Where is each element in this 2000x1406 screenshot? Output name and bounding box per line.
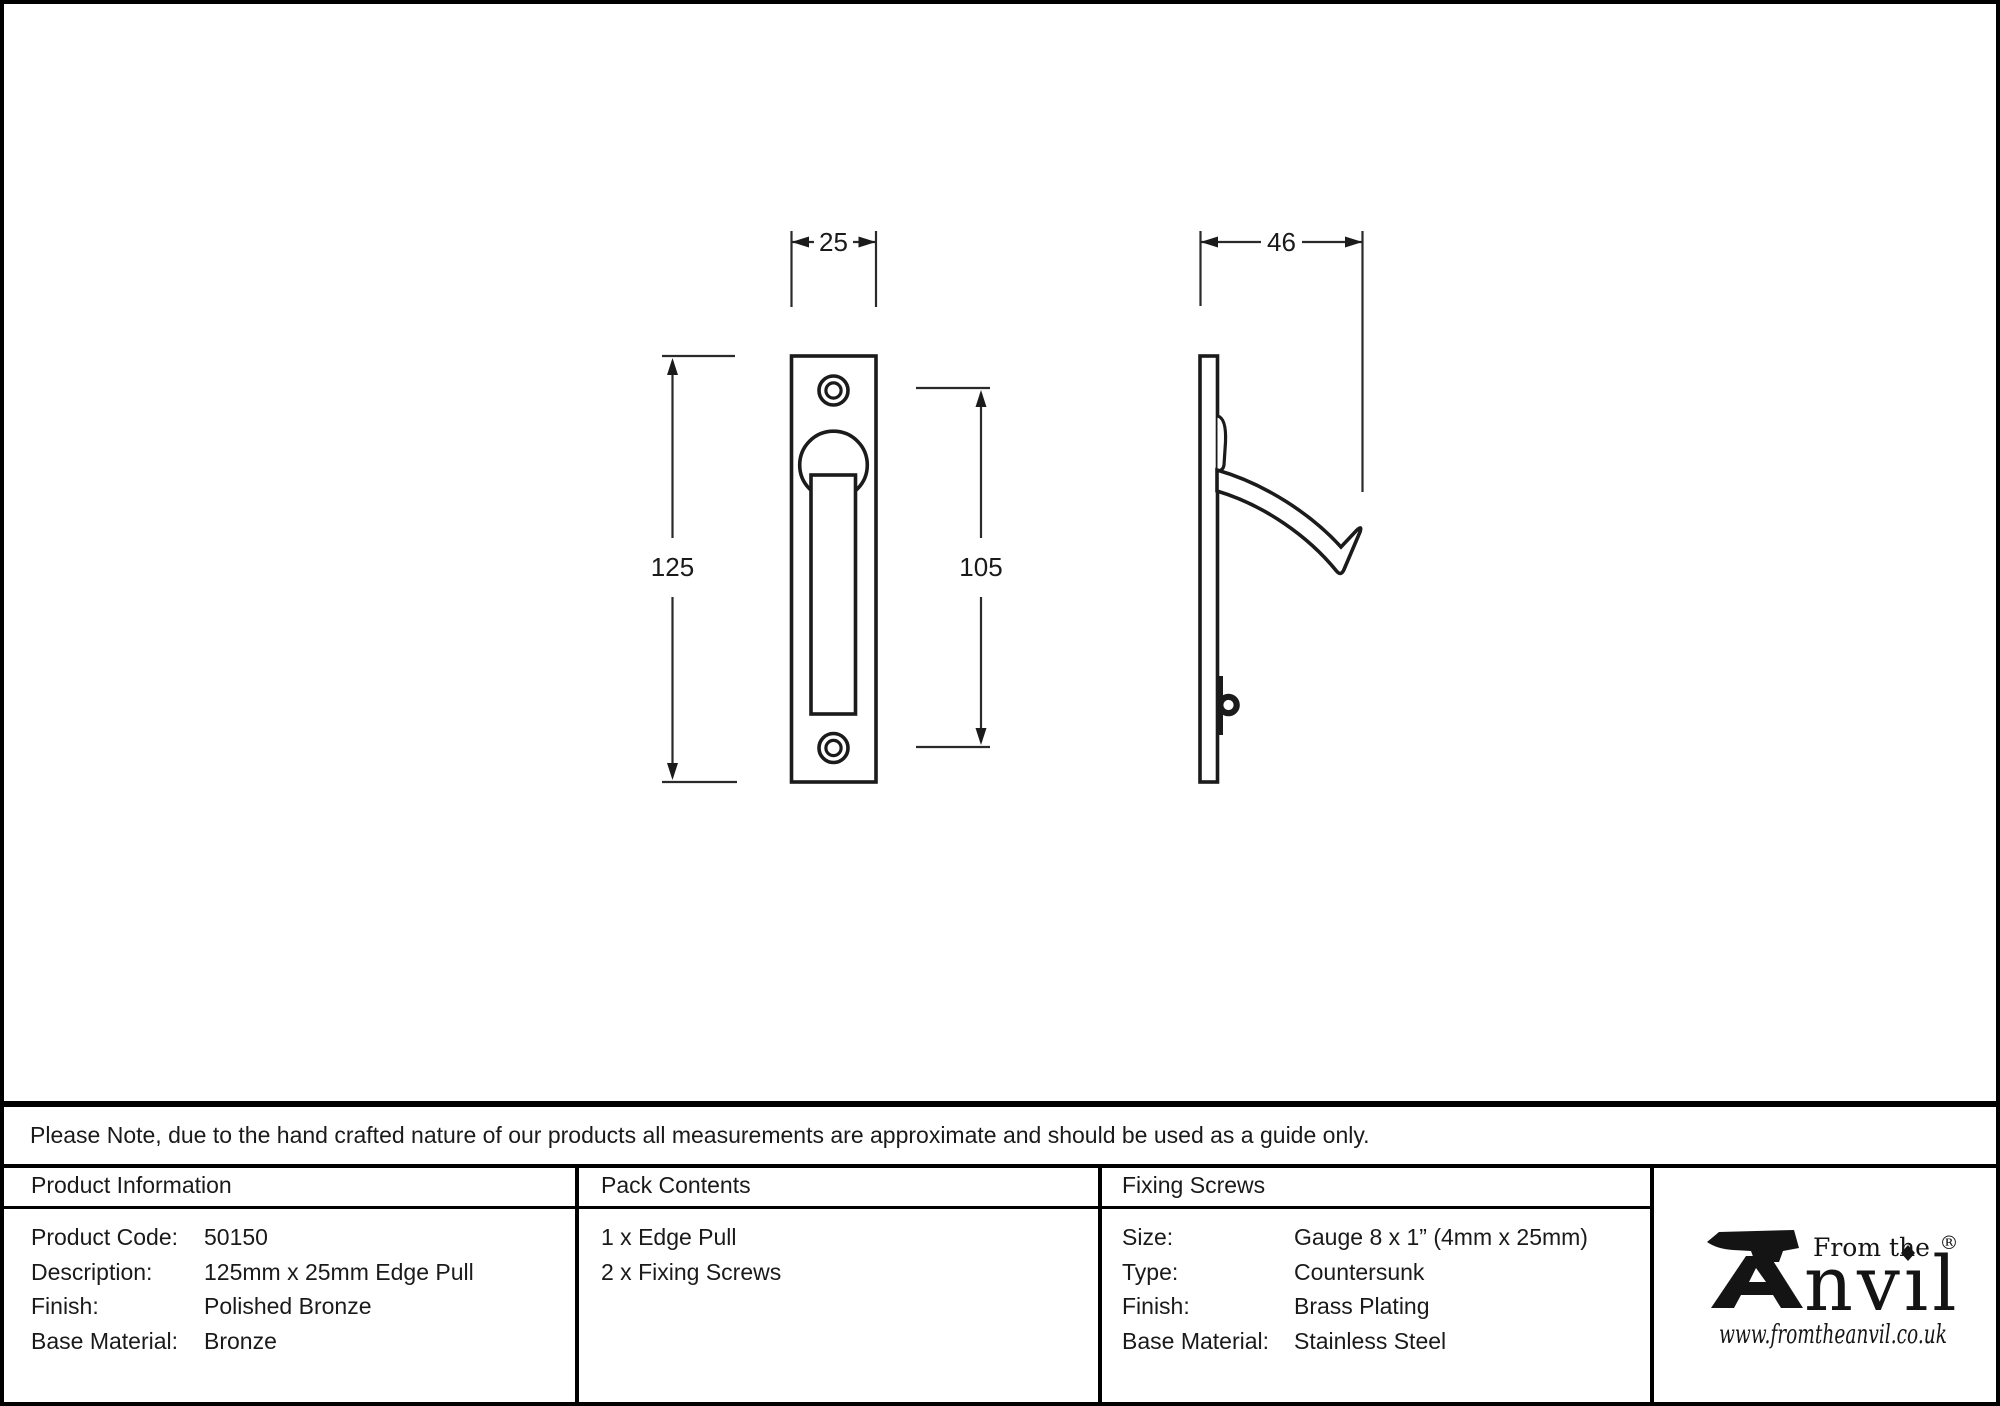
spec-value: 125mm x 25mm Edge Pull	[204, 1255, 474, 1290]
spec-row: Finish: Polished Bronze	[31, 1289, 571, 1324]
anvil-a-glyph	[1711, 1256, 1803, 1308]
website-url: www.fromtheanvil.co.uk	[1719, 1320, 1947, 1350]
note-text: Please Note, due to the hand crafted nat…	[30, 1106, 1370, 1164]
technical-drawing: 25 125 105	[4, 4, 2000, 1104]
spec-value: Countersunk	[1294, 1255, 1424, 1290]
product-information-header: Product Information	[31, 1164, 232, 1206]
brand-logo: From the nvıl ® www.fromtheanvil.co.uk	[1697, 1226, 1967, 1356]
side-pivot-knob	[1220, 697, 1236, 713]
side-ring-tab	[1218, 416, 1226, 471]
front-view	[792, 356, 877, 782]
spec-value: 50150	[204, 1220, 268, 1255]
spec-label: Product Code:	[31, 1220, 204, 1255]
pack-contents-header: Pack Contents	[601, 1164, 751, 1206]
arrow-down-icon	[667, 763, 678, 780]
arrow-right-icon	[859, 237, 877, 248]
side-plate-outline	[1200, 356, 1218, 782]
spec-label: Description:	[31, 1255, 204, 1290]
arrow-down-icon	[976, 728, 987, 745]
dimension-label-depth: 46	[1267, 227, 1296, 257]
spec-row: Type: Countersunk	[1122, 1255, 1642, 1290]
spec-sheet-page: 25 125 105	[0, 0, 2000, 1406]
table-top-border	[4, 1164, 2000, 1168]
arrow-up-icon	[976, 390, 987, 407]
table-divider	[575, 1164, 579, 1406]
spec-row: Base Material: Bronze	[31, 1324, 571, 1359]
spec-value: Stainless Steel	[1294, 1324, 1446, 1359]
arrow-left-icon	[1201, 237, 1219, 248]
dimension-label-height: 125	[651, 552, 694, 582]
spec-row: Description: 125mm x 25mm Edge Pull	[31, 1255, 571, 1290]
list-item: 2 x Fixing Screws	[601, 1255, 1081, 1290]
list-item: 1 x Edge Pull	[601, 1220, 1081, 1255]
spec-value: Polished Bronze	[204, 1289, 372, 1324]
spec-label: Finish:	[31, 1289, 204, 1324]
arrow-left-icon	[792, 237, 810, 248]
product-information-rows: Product Code: 50150 Description: 125mm x…	[31, 1220, 571, 1358]
spec-row: Product Code: 50150	[31, 1220, 571, 1255]
fixing-screws-header: Fixing Screws	[1122, 1164, 1265, 1206]
arrow-up-icon	[667, 358, 678, 375]
spec-label: Type:	[1122, 1255, 1294, 1290]
side-view	[1200, 356, 1361, 782]
dimension-label-screw-spacing: 105	[959, 552, 1002, 582]
spec-label: Size:	[1122, 1220, 1294, 1255]
table-divider	[1650, 1164, 1654, 1406]
spec-label: Finish:	[1122, 1289, 1294, 1324]
anvil-logo: From the nvıl ® www.fromtheanvil.co.uk	[1697, 1226, 1967, 1356]
spec-row: Finish: Brass Plating	[1122, 1289, 1642, 1324]
spec-label: Base Material:	[31, 1324, 204, 1359]
arrow-right-icon	[1345, 237, 1363, 248]
registered-mark: ®	[1940, 1232, 1959, 1254]
table-divider	[1098, 1164, 1102, 1406]
spec-label: Base Material:	[1122, 1324, 1294, 1359]
spec-value: Brass Plating	[1294, 1289, 1430, 1324]
side-pull-hook	[1217, 470, 1361, 573]
spec-value: Bronze	[204, 1324, 277, 1359]
spec-row: Size: Gauge 8 x 1” (4mm x 25mm)	[1122, 1220, 1642, 1255]
header-underline	[4, 1206, 1650, 1210]
spec-value: Gauge 8 x 1” (4mm x 25mm)	[1294, 1220, 1588, 1255]
brand-name: nvıl	[1804, 1239, 1961, 1328]
dimension-label-width: 25	[819, 227, 848, 257]
fixing-screws-rows: Size: Gauge 8 x 1” (4mm x 25mm) Type: Co…	[1122, 1220, 1642, 1358]
pack-contents-rows: 1 x Edge Pull 2 x Fixing Screws	[601, 1220, 1081, 1289]
pull-slot	[811, 475, 856, 714]
spec-row: Base Material: Stainless Steel	[1122, 1324, 1642, 1359]
